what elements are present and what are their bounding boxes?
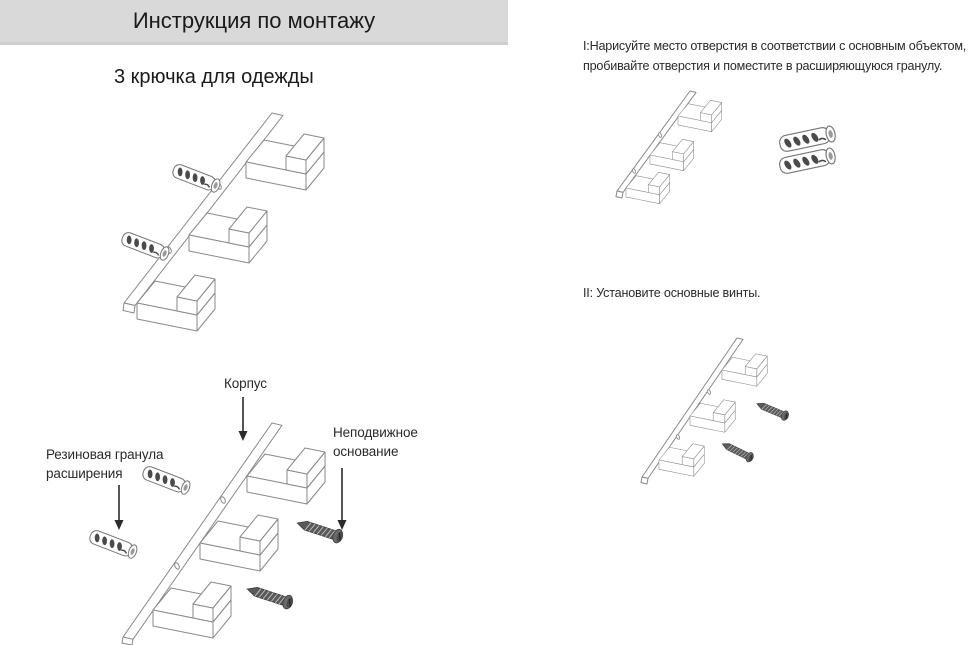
label-body: Корпус xyxy=(224,374,267,393)
down-arrow xyxy=(115,485,124,530)
exploded-parts-diagram xyxy=(30,370,430,645)
step-1-line-1: I:Нарисуйте место отверстия в соответств… xyxy=(583,36,966,56)
step-1-line-2: пробивайте отверстия и поместите в расши… xyxy=(583,56,966,76)
step-2-diagram xyxy=(610,330,850,515)
wall-plug xyxy=(171,163,222,194)
screw xyxy=(245,582,295,610)
wall-plug xyxy=(88,529,139,560)
label-expansion-plug: Резиновая гранула расширения xyxy=(46,445,176,483)
page-title: Инструкция по монтажу xyxy=(133,8,375,34)
down-arrow xyxy=(239,397,248,441)
step-1-instruction: I:Нарисуйте место отверстия в соответств… xyxy=(583,36,966,76)
screw xyxy=(295,516,345,544)
step-2-line-1: II: Установите основные винты. xyxy=(583,283,760,303)
assembled-hooks-diagram xyxy=(70,95,350,345)
header-bar: Инструкция по монтажу xyxy=(0,0,508,45)
step-1-diagram xyxy=(600,88,850,223)
screw xyxy=(755,399,791,422)
wall-plug xyxy=(120,231,171,262)
step-2-instruction: II: Установите основные винты. xyxy=(583,283,760,303)
down-arrow xyxy=(338,468,347,530)
instruction-sheet: Инструкция по монтажу 3 крючка для одежд… xyxy=(0,0,970,645)
screw xyxy=(720,439,755,463)
product-subtitle: 3 крючка для одежды xyxy=(114,66,314,89)
label-fixed-base: Неподвижное основание xyxy=(333,423,439,461)
